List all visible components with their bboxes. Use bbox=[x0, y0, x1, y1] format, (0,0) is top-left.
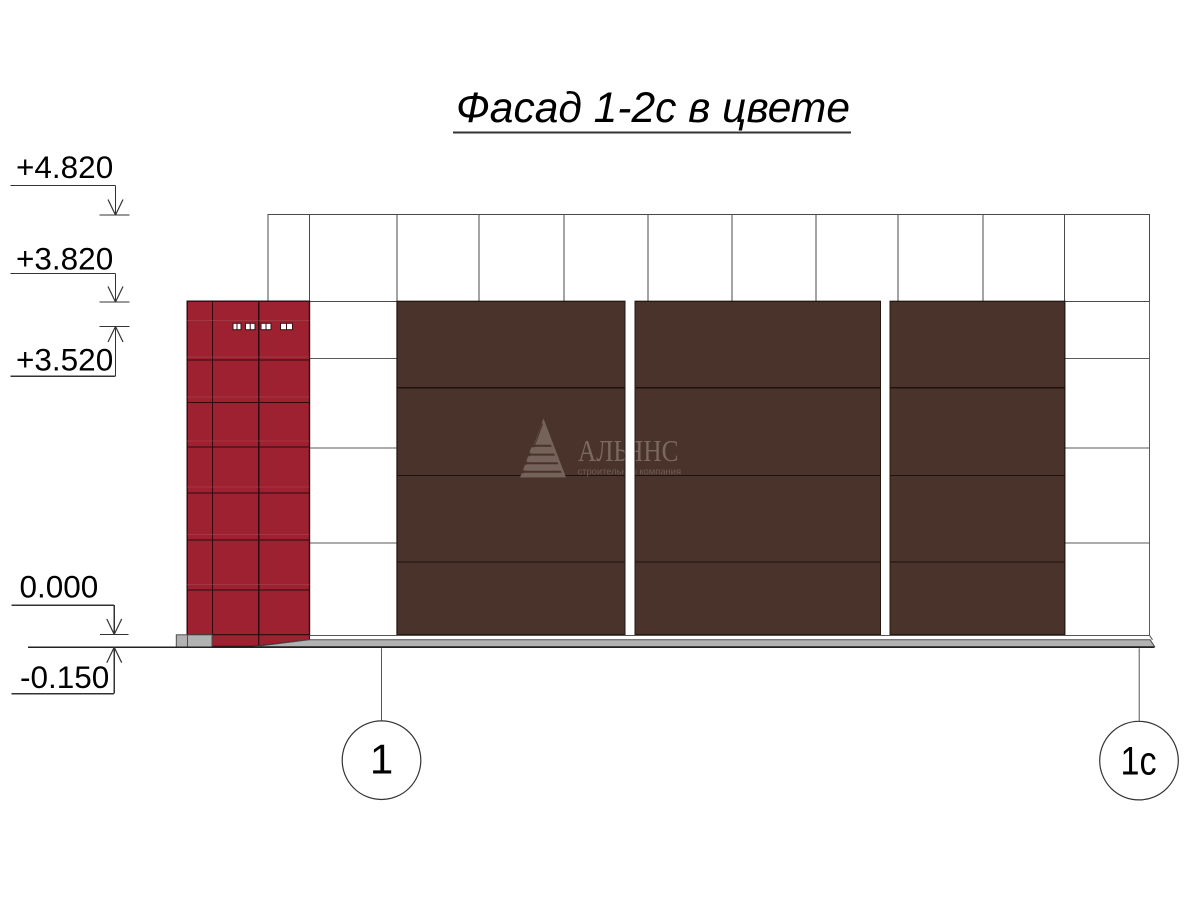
svg-text:-0.150: -0.150 bbox=[20, 659, 109, 695]
svg-text:0.000: 0.000 bbox=[20, 568, 99, 604]
svg-text:Фасад 1-2с в цвете: Фасад 1-2с в цвете bbox=[456, 85, 850, 132]
svg-text:1с: 1с bbox=[1121, 740, 1157, 784]
svg-text:+4.820: +4.820 bbox=[16, 149, 113, 185]
svg-text:1: 1 bbox=[370, 736, 393, 783]
svg-text:+3.820: +3.820 bbox=[16, 241, 113, 277]
svg-text:+3.520: +3.520 bbox=[16, 342, 113, 378]
